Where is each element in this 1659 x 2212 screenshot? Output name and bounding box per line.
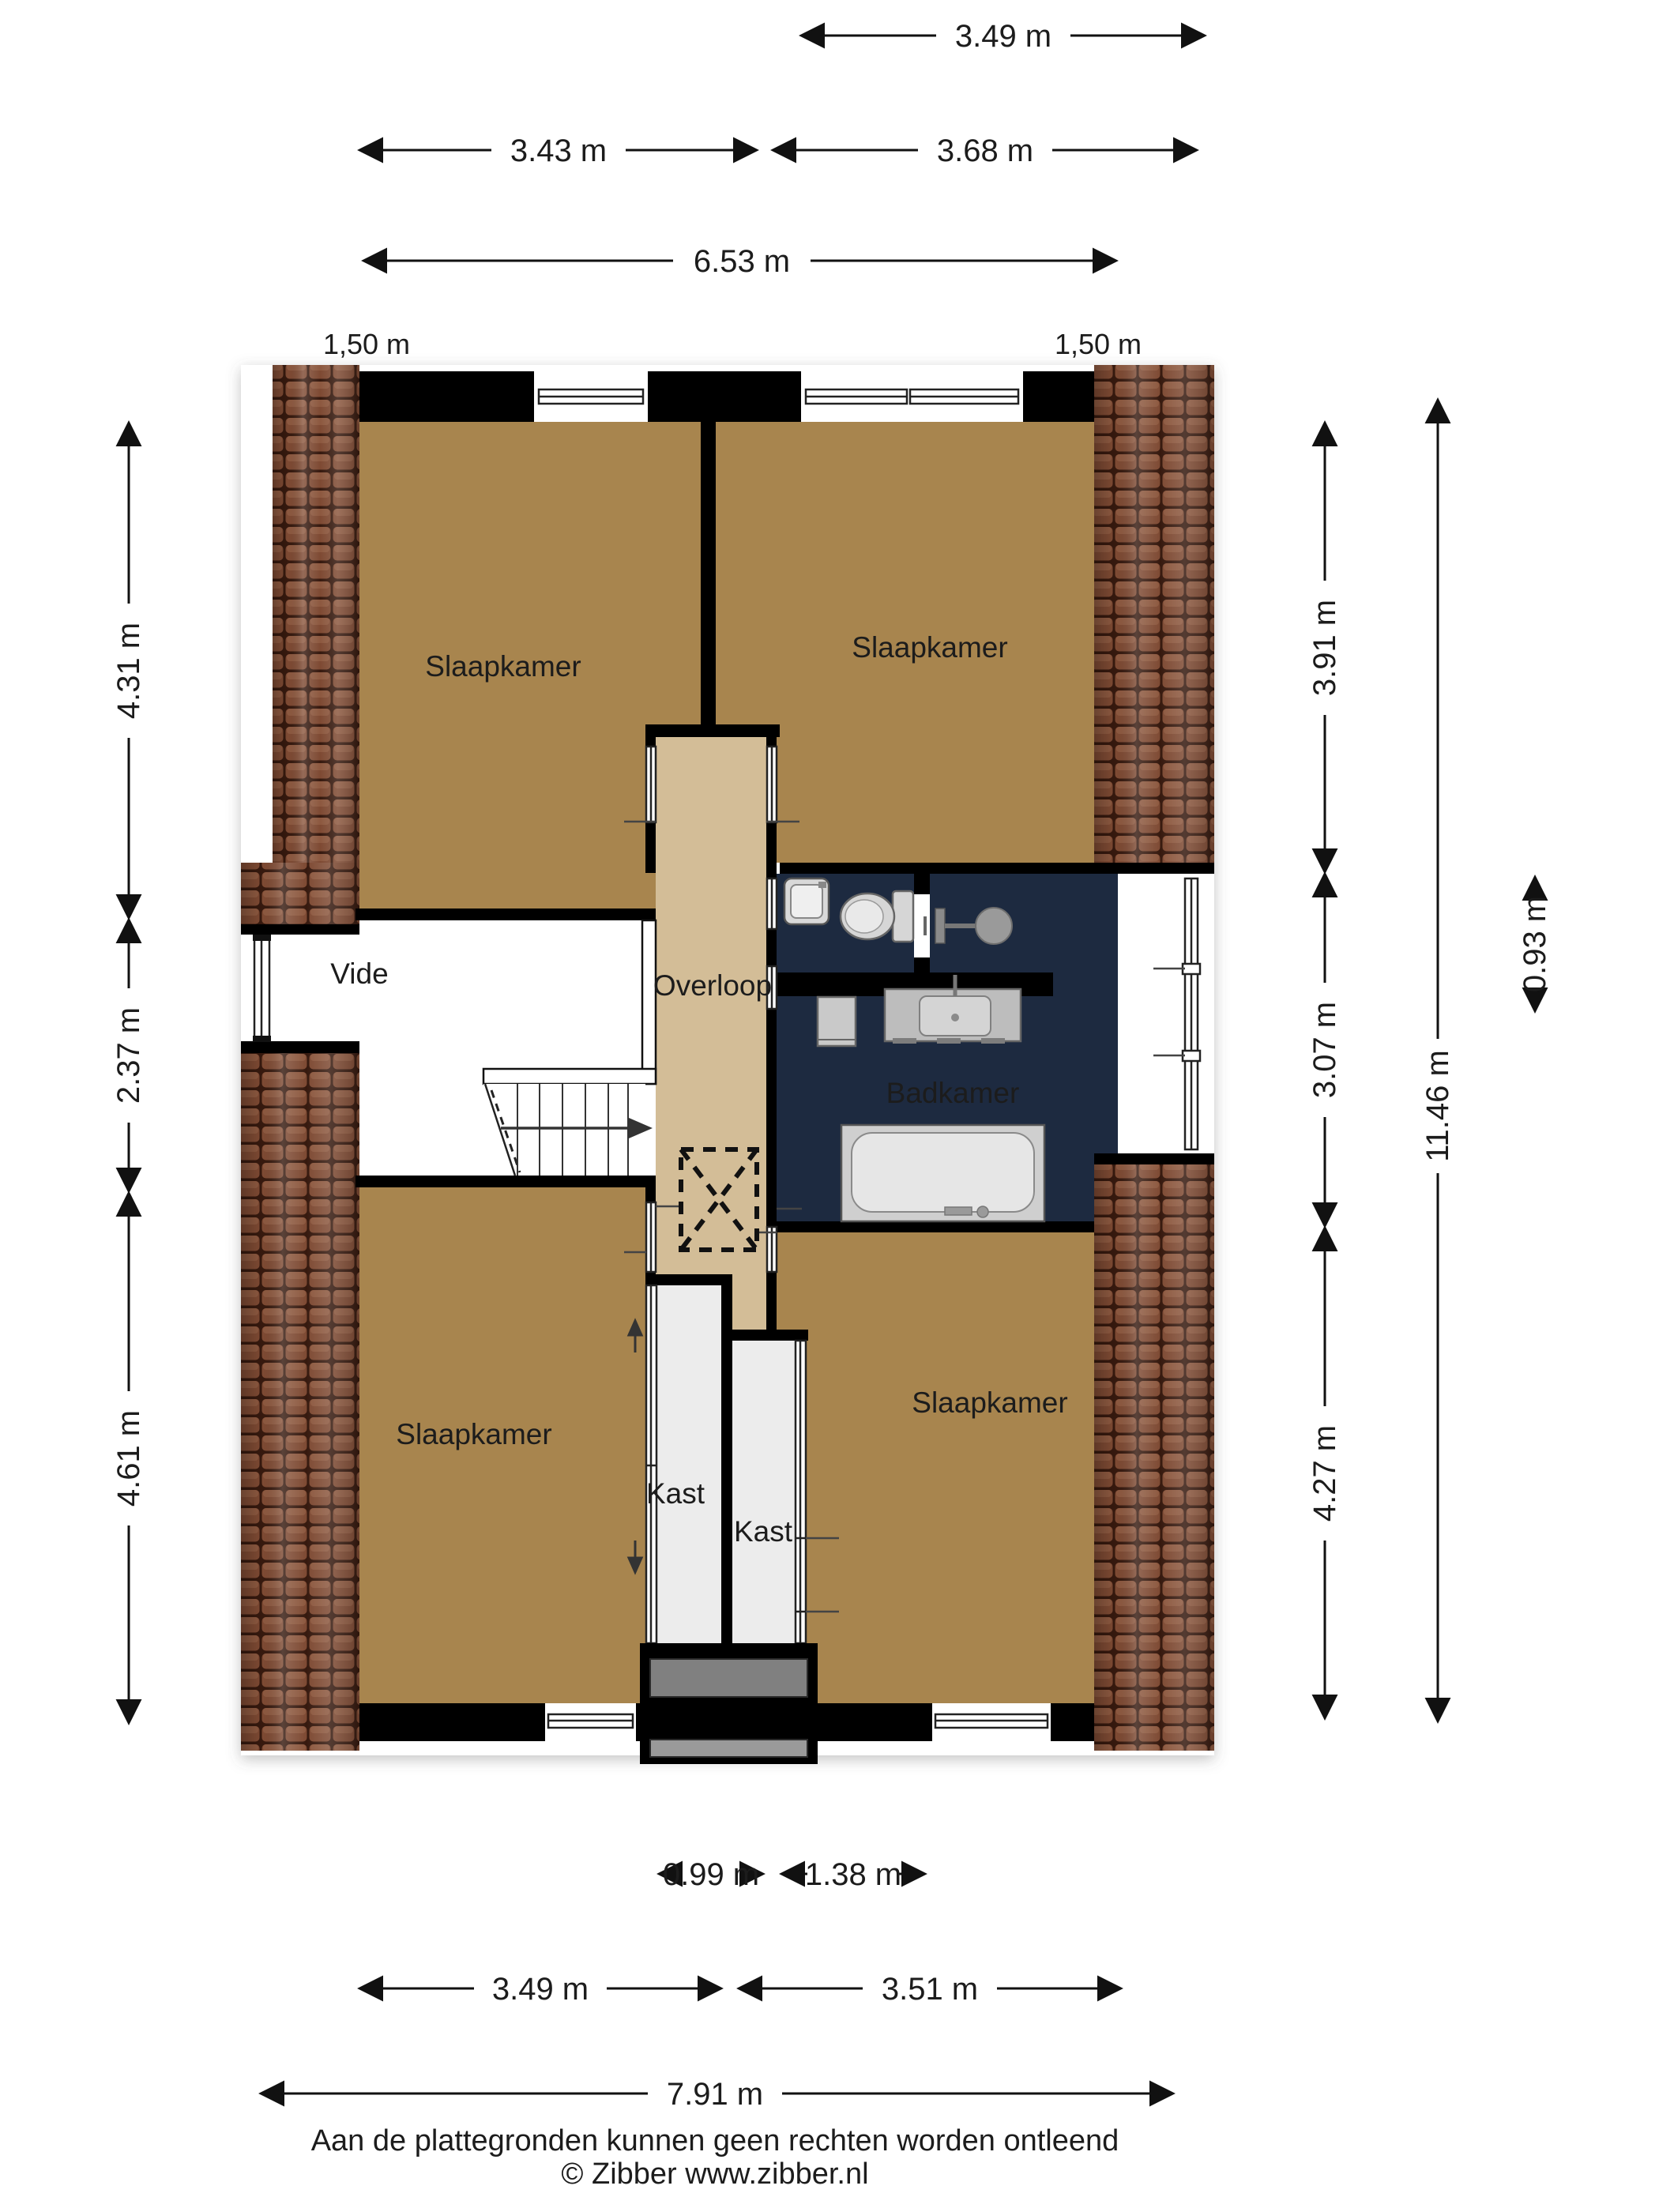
window-top-left	[534, 371, 648, 422]
washbasin	[784, 878, 829, 924]
dim-label: 3.51 m	[882, 1972, 978, 2007]
floor-dormer-right	[1118, 874, 1214, 1153]
window-bottom-left	[545, 1703, 636, 1741]
dim-label: 3.49 m	[492, 1972, 589, 2007]
dim-right-093: 0.93 m	[1518, 878, 1552, 1010]
dim-label: 4.31 m	[111, 623, 146, 719]
window-dormer-left	[253, 935, 271, 1042]
footer: Aan de plattegronden kunnen geen rechten…	[311, 2124, 1119, 2191]
wall-top-3	[1023, 371, 1094, 422]
wall-top-1	[359, 371, 534, 422]
bathroom-cabinet	[818, 997, 856, 1046]
dim-label: 2.37 m	[111, 1007, 146, 1104]
window-landing-right	[767, 747, 777, 822]
dim-right-427: 4.27 m	[1307, 1229, 1342, 1717]
wall-bathroom-top	[780, 863, 1214, 874]
wall-bottom-3	[1051, 1703, 1094, 1741]
roof-strip-left-mid	[241, 863, 359, 924]
wall-divider-top-bedrooms	[701, 422, 716, 726]
dim-label: 4.61 m	[111, 1410, 146, 1507]
wall-closet-mid	[721, 1285, 732, 1650]
dim-bottom-138: 1.38 m	[783, 1857, 924, 1892]
dim-top-368: 3.68 m	[774, 134, 1195, 168]
dim-right-391: 3.91 m	[1307, 424, 1342, 871]
label-landing: Overloop	[653, 969, 772, 1002]
label-bedroom-bottom-left: Slaapkamer	[396, 1418, 551, 1450]
window-bedroom-br-door	[767, 1227, 777, 1272]
dim-label: 3.07 m	[1307, 1002, 1342, 1098]
roof-strip-right-top	[1094, 365, 1214, 863]
dim-right-307: 3.07 m	[1307, 875, 1342, 1224]
label-bathroom: Badkamer	[886, 1077, 1020, 1109]
wall-bottom-1	[359, 1703, 545, 1741]
floor-closet-right	[732, 1341, 796, 1643]
dim-label: 1.38 m	[805, 1857, 901, 1892]
stairs-landing-edge	[483, 1069, 656, 1084]
label-vide: Vide	[330, 957, 388, 990]
window-landing-left-lower	[646, 1202, 656, 1272]
roof-strip-left-top	[273, 365, 359, 863]
window-dormer-right	[1183, 878, 1200, 1149]
wall-dormer-left-top	[241, 924, 359, 935]
dim-left-431: 4.31 m	[111, 424, 146, 916]
roof-strip-right-bottom	[1094, 1164, 1214, 1751]
wall-vide-top	[355, 908, 656, 920]
wall-dormer-right-bottom	[1094, 1153, 1214, 1164]
dim-bottom-351: 3.51 m	[740, 1972, 1119, 2007]
wall-top-2	[648, 371, 801, 422]
wall-closet-right-top	[732, 1330, 808, 1341]
floorplan-page: Slaapkamer Slaapkamer Vide Overloop Badk…	[0, 0, 1659, 2212]
dim-label: 0.93 m	[1518, 896, 1552, 992]
window-top-right	[801, 371, 1023, 422]
dim-label: 11.46 m	[1420, 1050, 1455, 1162]
window-bottom-right	[932, 1703, 1051, 1741]
label-bedroom-bottom-right: Slaapkamer	[912, 1386, 1067, 1419]
dim-left-461: 4.61 m	[111, 1194, 146, 1721]
wall-bathroom-bottom	[766, 1221, 1094, 1232]
label-bedroom-top-left: Slaapkamer	[425, 650, 581, 683]
dim-top-349: 3.49 m	[803, 19, 1203, 54]
dim-label: 0.99 m	[663, 1857, 759, 1892]
dim-left-237: 2.37 m	[111, 921, 146, 1190]
dim-bottom-791: 7.91 m	[262, 2077, 1172, 2112]
label-closet-right: Kast	[734, 1515, 793, 1548]
dim-bottom-099: 0.99 m	[660, 1857, 762, 1892]
vide-railing	[642, 920, 656, 1084]
dim-label: 4.27 m	[1307, 1425, 1342, 1522]
label-closet-left: Kast	[646, 1477, 705, 1510]
wall-landing-top	[645, 724, 780, 737]
label-eave-right: 1,50 m	[1055, 328, 1142, 360]
dim-label: 6.53 m	[694, 244, 790, 279]
label-bedroom-top-right: Slaapkamer	[852, 631, 1007, 664]
window-bathroom-door	[767, 878, 777, 929]
footer-disclaimer: Aan de plattegronden kunnen geen rechten…	[311, 2124, 1119, 2157]
floor-closet-left	[656, 1285, 721, 1643]
toilet	[841, 891, 913, 942]
window-closet-right	[796, 1341, 806, 1643]
wall-vide-bottom	[355, 1176, 656, 1187]
dim-label: 3.49 m	[955, 19, 1051, 54]
wall-closet-left-top	[656, 1274, 732, 1285]
dim-top-343: 3.43 m	[361, 134, 755, 168]
bathtub	[841, 1125, 1044, 1221]
roof-strip-left-bottom	[241, 1053, 359, 1751]
dim-right-total: 11.46 m	[1420, 401, 1455, 1720]
dim-label: 3.91 m	[1307, 600, 1342, 696]
window-closet-left	[646, 1285, 656, 1643]
stairs	[483, 1084, 645, 1176]
dim-label: 3.68 m	[937, 134, 1033, 168]
bathroom-partition-door	[914, 894, 930, 957]
label-eave-left: 1,50 m	[323, 328, 410, 360]
window-landing-left	[646, 747, 656, 822]
floor-bedroom-bottom-right	[777, 1232, 1094, 1703]
dim-top-653: 6.53 m	[365, 244, 1115, 279]
dim-label: 7.91 m	[667, 2077, 763, 2112]
dim-bottom-349: 3.49 m	[361, 1972, 720, 2007]
dim-label: 3.43 m	[510, 134, 607, 168]
wall-dormer-left-bottom	[241, 1041, 359, 1053]
footer-credit: © Zibber www.zibber.nl	[561, 2157, 868, 2191]
chimney	[640, 1643, 818, 1764]
